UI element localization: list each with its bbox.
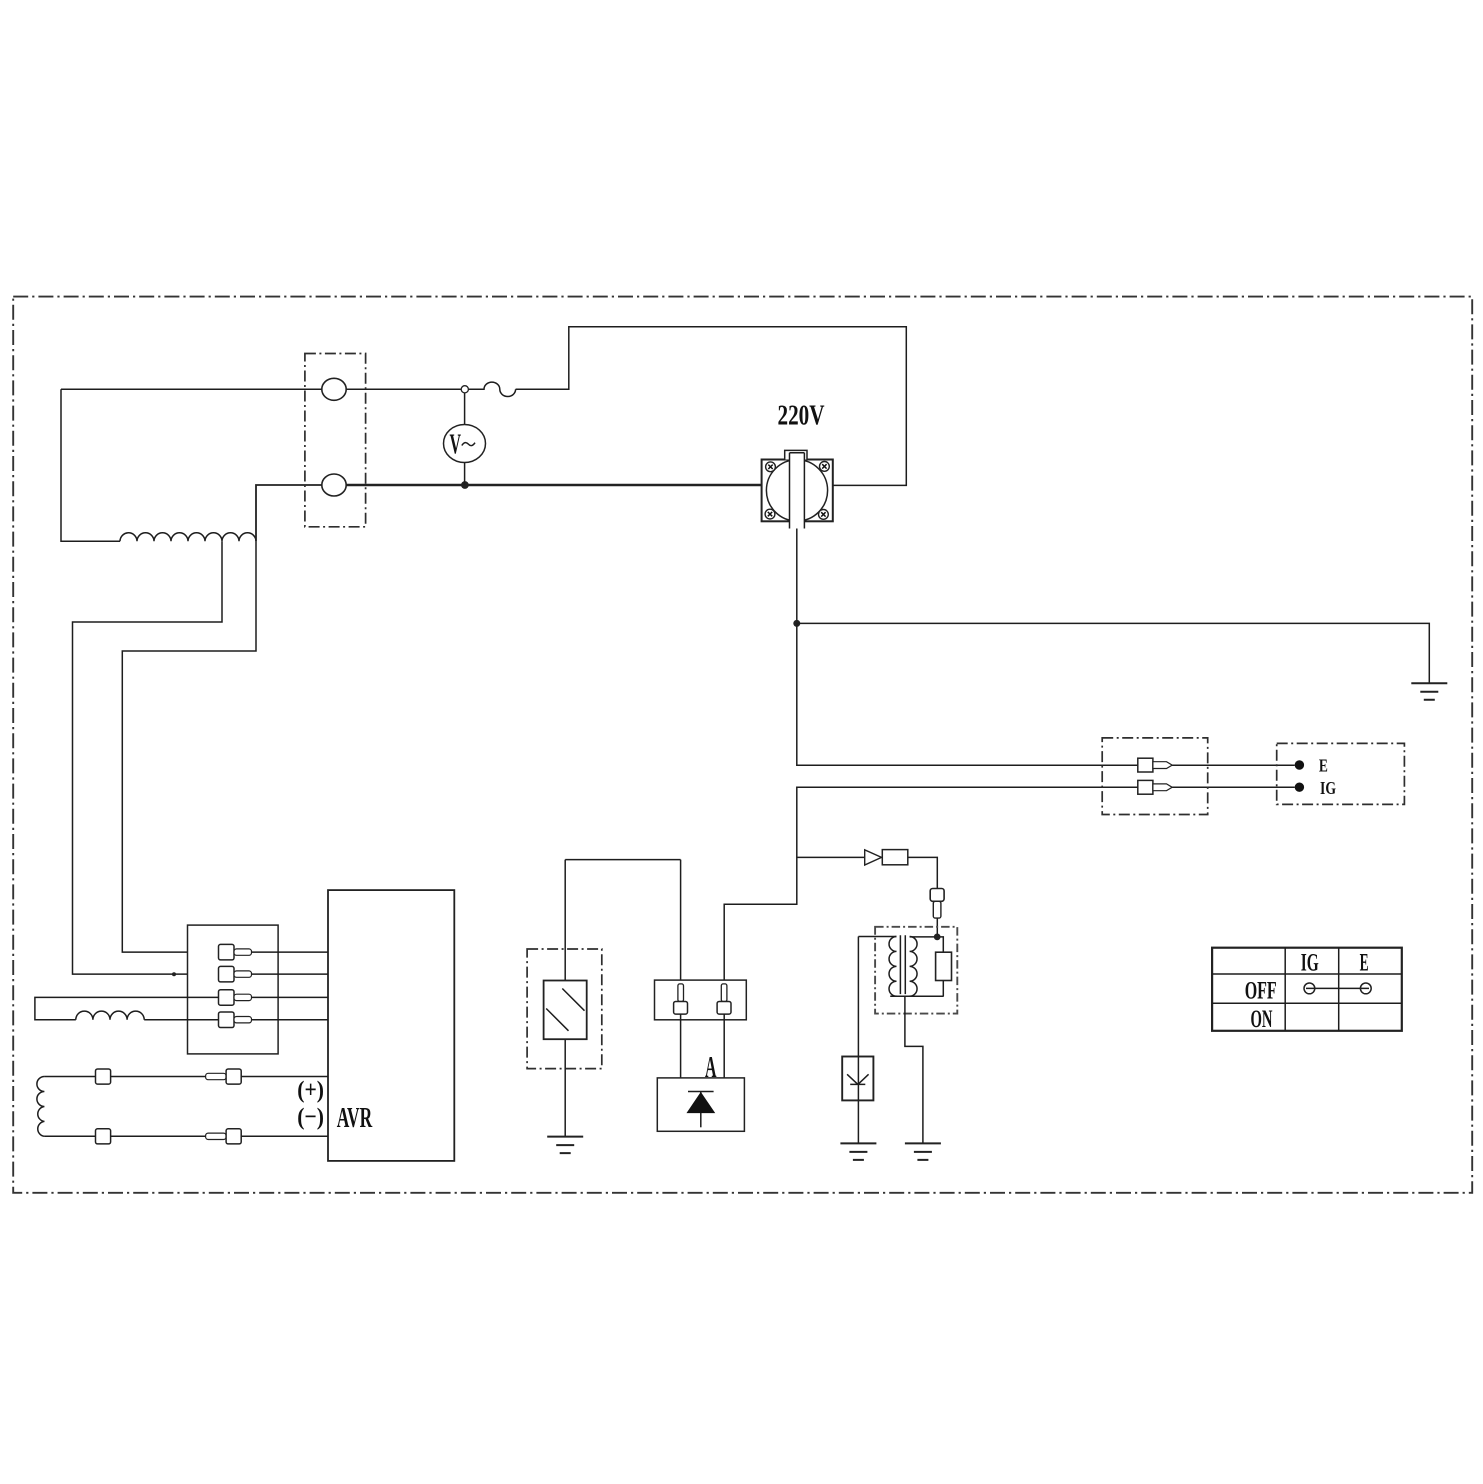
svg-text:(+): (+) [297, 1077, 324, 1104]
svg-text:E: E [1319, 756, 1328, 776]
svg-text:OFF: OFF [1245, 978, 1277, 1005]
svg-text:(−): (−) [297, 1103, 324, 1130]
svg-text:IG: IG [1301, 950, 1319, 977]
svg-text:E: E [1360, 950, 1369, 977]
svg-text:ON: ON [1251, 1006, 1273, 1033]
svg-text:IG: IG [1320, 778, 1336, 798]
svg-text:V: V [450, 430, 462, 461]
svg-text:AVR: AVR [337, 1102, 373, 1134]
svg-text:220V: 220V [778, 401, 825, 432]
